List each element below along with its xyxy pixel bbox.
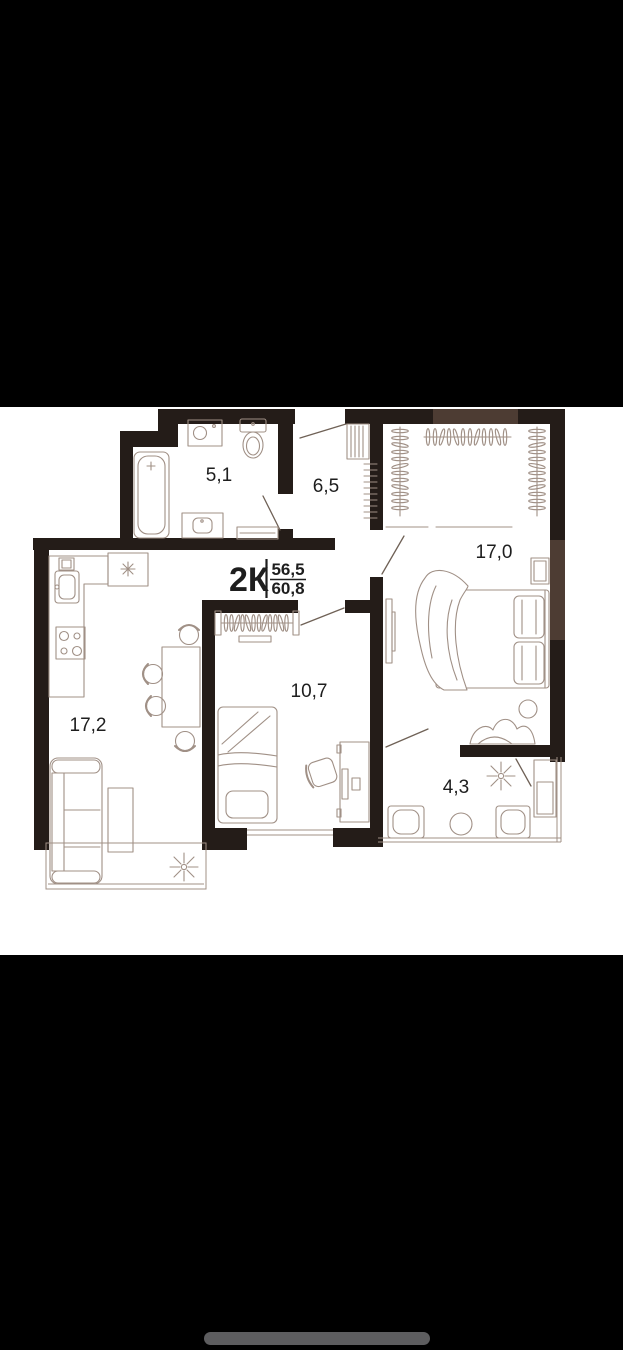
- dining-chair: [146, 696, 166, 716]
- home-indicator-bar[interactable]: [204, 1332, 430, 1345]
- sink: [182, 513, 223, 538]
- nightstand: [531, 558, 549, 584]
- wall-segment: [34, 550, 49, 850]
- room-area-label: 6,5: [313, 476, 339, 497]
- bathroom-door: [263, 496, 280, 530]
- bedroom-door: [382, 536, 404, 574]
- double-bed: [416, 570, 549, 690]
- dining-chair: [179, 625, 199, 645]
- wall-segment: [333, 828, 383, 847]
- entrance-door: [300, 424, 346, 438]
- dresser: [470, 719, 535, 744]
- dining-chair: [143, 664, 163, 684]
- single-bed: [218, 707, 277, 823]
- phone-screen: 5,1 6,5: [0, 0, 623, 1350]
- wall-segment: [158, 409, 178, 447]
- kitchen-living-room: 17,2: [49, 553, 200, 884]
- wardrobe: [215, 611, 299, 642]
- wall-segment: [202, 828, 247, 850]
- room-area-label: 17,0: [476, 542, 513, 563]
- hallway: 6,5: [313, 424, 377, 518]
- sofa: [50, 758, 102, 884]
- cabinet: [59, 558, 74, 570]
- windows: [46, 757, 561, 889]
- balcony: 4,3: [388, 760, 556, 838]
- stove: [56, 627, 85, 659]
- room-area-label: 5,1: [206, 465, 232, 486]
- wall-segment: [345, 600, 370, 613]
- wardrobe: [386, 427, 545, 527]
- wall-segment: [120, 431, 133, 550]
- wall-segment: [550, 640, 565, 745]
- desk: [337, 742, 369, 822]
- wall-segment: [370, 577, 383, 847]
- toilet: [240, 419, 266, 458]
- apartment-type-label: 2К: [229, 561, 269, 599]
- plant: [170, 853, 198, 881]
- desk-chair: [304, 757, 339, 790]
- wall-segment-light: [550, 540, 565, 640]
- floorplan-svg: 5,1 6,5: [0, 407, 623, 955]
- area-value-bottom: 60,8: [271, 579, 304, 598]
- room-area-label: 10,7: [291, 681, 328, 702]
- window: [247, 830, 333, 835]
- room-10-7: 10,7: [215, 611, 369, 823]
- duvet: [416, 570, 468, 690]
- wall-segment: [550, 424, 565, 540]
- armchair: [496, 806, 530, 838]
- round-table: [450, 813, 472, 835]
- dining-chair: [175, 732, 195, 752]
- room-area-label: 4,3: [443, 777, 469, 798]
- wall-segment: [460, 745, 550, 757]
- snowflake-icon: [121, 562, 135, 576]
- room-door: [301, 608, 344, 625]
- floorplan-canvas: 5,1 6,5: [0, 407, 623, 955]
- armchair: [388, 806, 424, 838]
- balcony-inner-door: [516, 759, 531, 786]
- bedroom: 17,0: [386, 427, 549, 744]
- wall-segment: [202, 600, 215, 832]
- shelf: [237, 527, 278, 539]
- balcony-door: [386, 729, 428, 747]
- kitchen-sink: [55, 571, 79, 603]
- area-value-top: 56,5: [271, 560, 304, 579]
- wall-segment: [278, 424, 293, 494]
- wall-segment: [33, 538, 335, 550]
- room-area-label: 17,2: [70, 715, 107, 736]
- dining-table: [162, 647, 200, 727]
- coffee-table: [108, 788, 133, 852]
- tv: [386, 599, 395, 663]
- wall-segment: [370, 424, 383, 530]
- cabinet: [534, 760, 556, 817]
- shoe-rack: [347, 424, 369, 459]
- stool: [519, 700, 537, 718]
- wall-segment-light: [433, 409, 518, 424]
- fridge: [108, 553, 148, 586]
- title-block: 2К 56,5 60,8: [229, 559, 306, 599]
- plant: [487, 762, 515, 790]
- wall-segment: [177, 409, 295, 424]
- bathtub: [134, 452, 169, 538]
